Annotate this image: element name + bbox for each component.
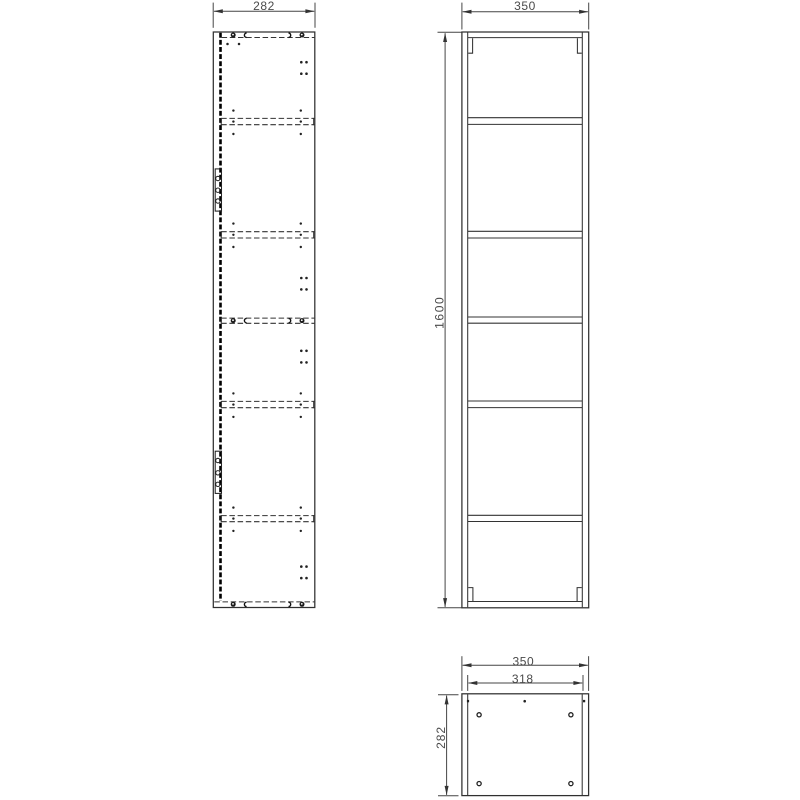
svg-text:318: 318	[512, 672, 534, 686]
svg-text:350: 350	[514, 0, 536, 13]
svg-text:282: 282	[434, 726, 448, 749]
svg-text:1600: 1600	[433, 296, 447, 329]
svg-text:282: 282	[253, 0, 275, 13]
svg-text:350: 350	[512, 654, 534, 668]
